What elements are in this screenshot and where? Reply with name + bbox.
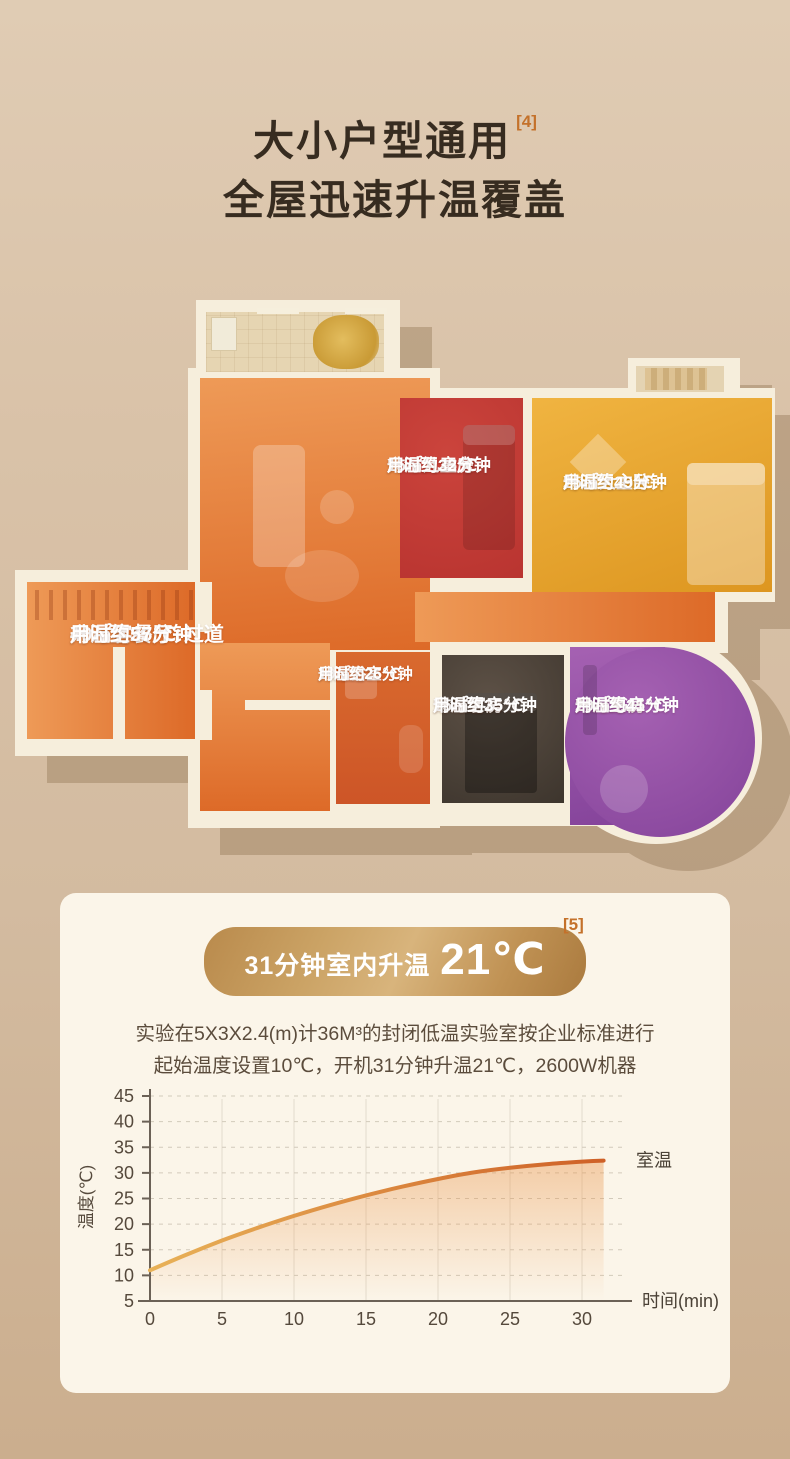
window — [345, 308, 387, 314]
svg-text:10: 10 — [284, 1309, 304, 1329]
svg-text:30: 30 — [114, 1163, 134, 1183]
sofa — [253, 445, 305, 567]
master-pillow — [687, 463, 765, 485]
wall-stub — [245, 700, 330, 710]
svg-text:5: 5 — [217, 1309, 227, 1329]
svg-text:40: 40 — [114, 1112, 134, 1132]
svg-text:10: 10 — [114, 1265, 134, 1285]
study-plant — [600, 765, 648, 813]
svg-text:15: 15 — [114, 1240, 134, 1260]
living-foyer — [200, 643, 330, 811]
svg-text:时间(min): 时间(min) — [642, 1291, 719, 1311]
wall-stub — [200, 690, 212, 740]
temperature-chart-svg: 51015202530354045051015202530温度(℃)时间(min… — [70, 1073, 730, 1335]
page-title: 大小户型通用[4] 全屋迅速升温覆盖 — [0, 92, 790, 230]
living-room — [200, 378, 430, 650]
temperature-chart: 51015202530354045051015202530温度(℃)时间(min… — [70, 1073, 730, 1335]
rug — [285, 550, 359, 602]
wardrobe — [35, 590, 193, 620]
svg-text:20: 20 — [428, 1309, 448, 1329]
svg-text:5: 5 — [124, 1291, 134, 1311]
hallway — [415, 592, 715, 642]
wall-stub — [113, 647, 125, 739]
kids-pillow — [463, 425, 515, 445]
kitchen-plant — [313, 315, 379, 369]
svg-text:20: 20 — [114, 1214, 134, 1234]
footnote-4: [4] — [516, 112, 537, 131]
svg-text:0: 0 — [145, 1309, 155, 1329]
svg-text:温度(℃): 温度(℃) — [77, 1165, 96, 1229]
svg-text:25: 25 — [500, 1309, 520, 1329]
bathtub — [399, 725, 423, 773]
experiment-card: 31分钟室内升温 21℃ [5] 实验在5X3X2.4(m)计36M³的封闭低温… — [60, 893, 730, 1393]
svg-text:35: 35 — [114, 1137, 134, 1157]
title-line-2: 全屋迅速升温覆盖 — [0, 171, 790, 230]
badge-prefix: 31分钟室内升温 — [244, 946, 430, 982]
svg-text:45: 45 — [114, 1086, 134, 1106]
promo-page: 大小户型通用[4] 全屋迅速升温覆盖 — [0, 0, 790, 1459]
coffee-table — [320, 490, 354, 524]
badge-row: 31分钟室内升温 21℃ [5] — [60, 893, 730, 996]
title-line-1: 大小户型通用[4] — [0, 92, 790, 171]
balcony-cabinet — [645, 368, 707, 390]
badge-value: 21℃ — [440, 934, 545, 985]
window — [257, 308, 299, 314]
svg-text:25: 25 — [114, 1189, 134, 1209]
floorplan: 40㎡客餐厅+过道 升温至25℃ 用时约57分钟 15㎡儿童房 升温至25℃ 用… — [15, 295, 775, 865]
fridge — [211, 317, 237, 351]
svg-text:室温: 室温 — [636, 1151, 672, 1171]
svg-text:30: 30 — [572, 1309, 592, 1329]
footnote-5: [5] — [563, 915, 584, 935]
svg-text:15: 15 — [356, 1309, 376, 1329]
heat-up-badge: 31分钟室内升温 21℃ — [204, 927, 585, 996]
